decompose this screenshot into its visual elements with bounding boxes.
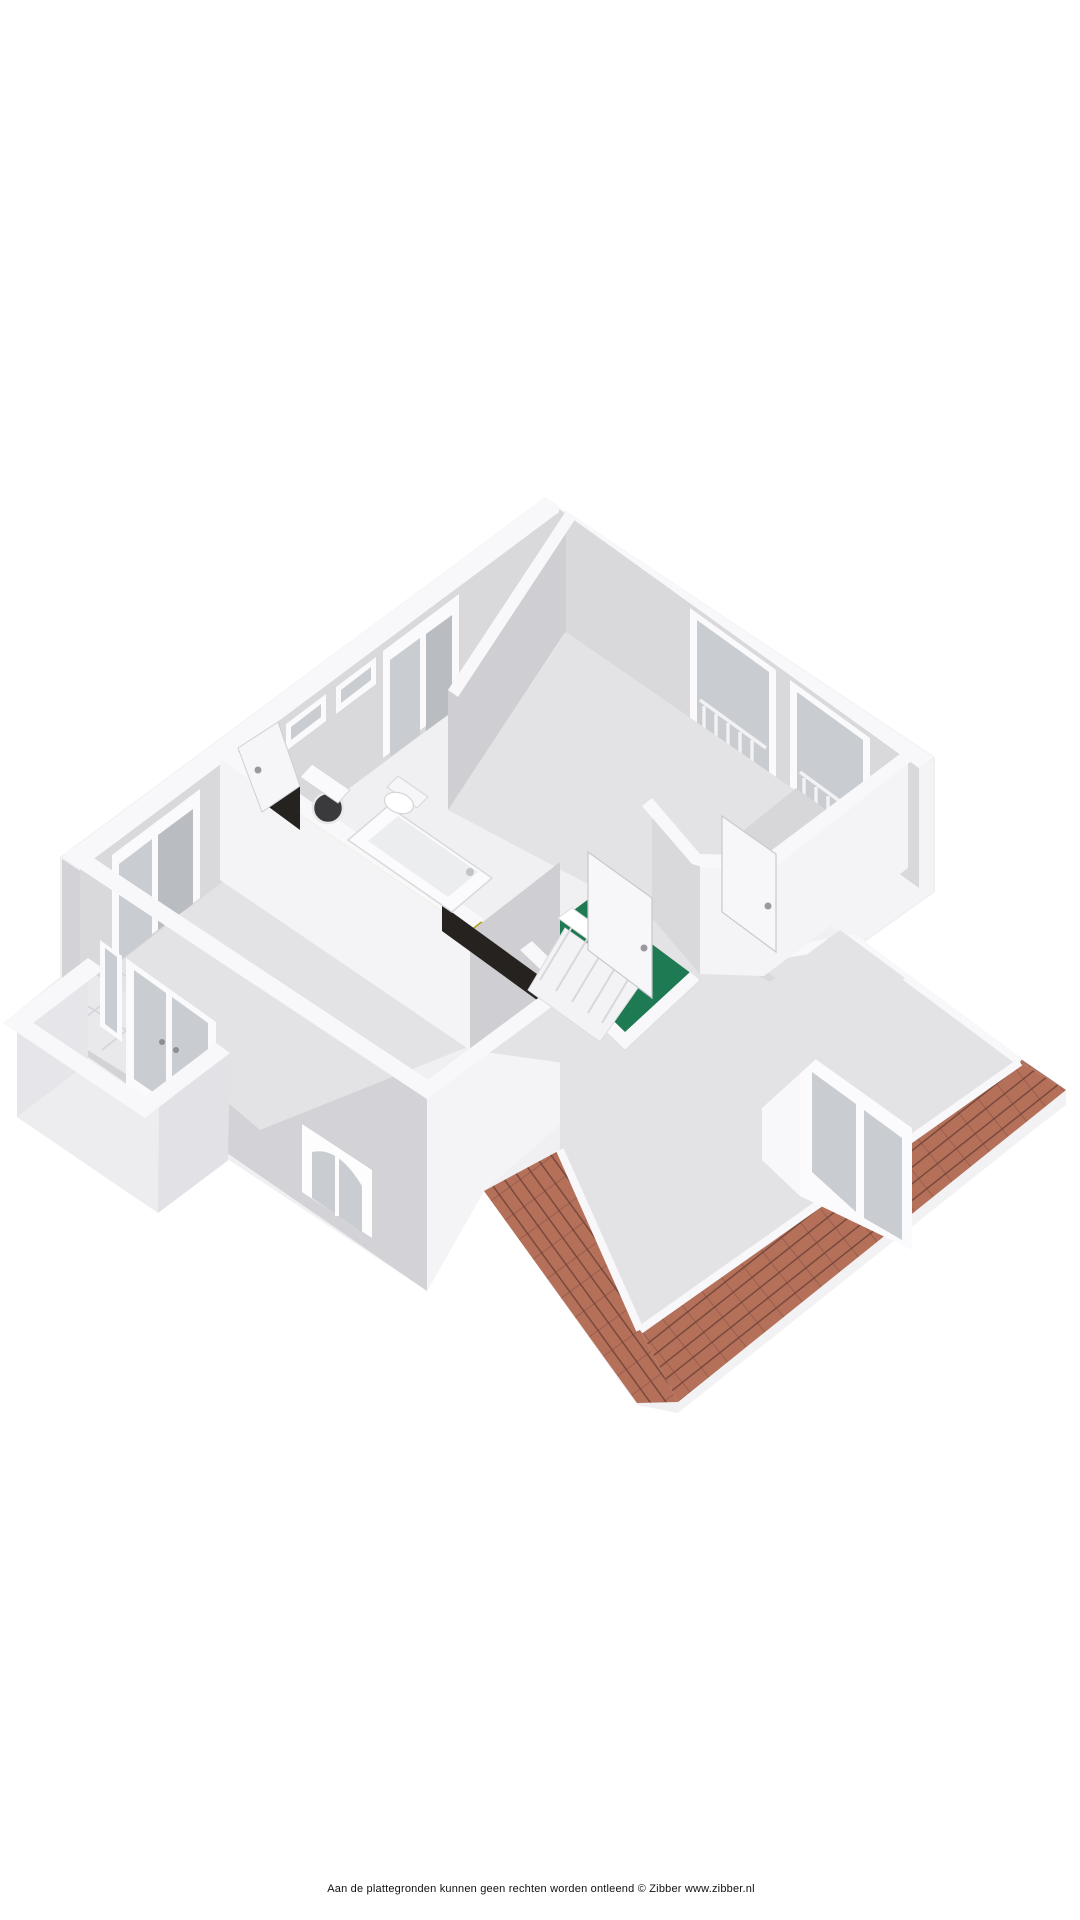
balcony-door-glass-left [134,970,166,1101]
floorplan-page: Aan de plattegronden kunnen geen rechten… [0,0,1080,1920]
balcony-door-handle-right [173,1047,179,1053]
bathtub-faucet [466,868,474,876]
balcony-side-window-glass [105,948,117,1033]
toilet-room-door-handle [255,767,262,774]
storage-door-handle [765,903,772,910]
landing-door-handle [641,945,648,952]
balcony-door-handle-left [159,1039,165,1045]
disclaimer-text: Aan de plattegronden kunnen geen rechten… [327,1883,755,1895]
floorplan-3d-render: Aan de plattegronden kunnen geen rechten… [0,0,1080,1920]
